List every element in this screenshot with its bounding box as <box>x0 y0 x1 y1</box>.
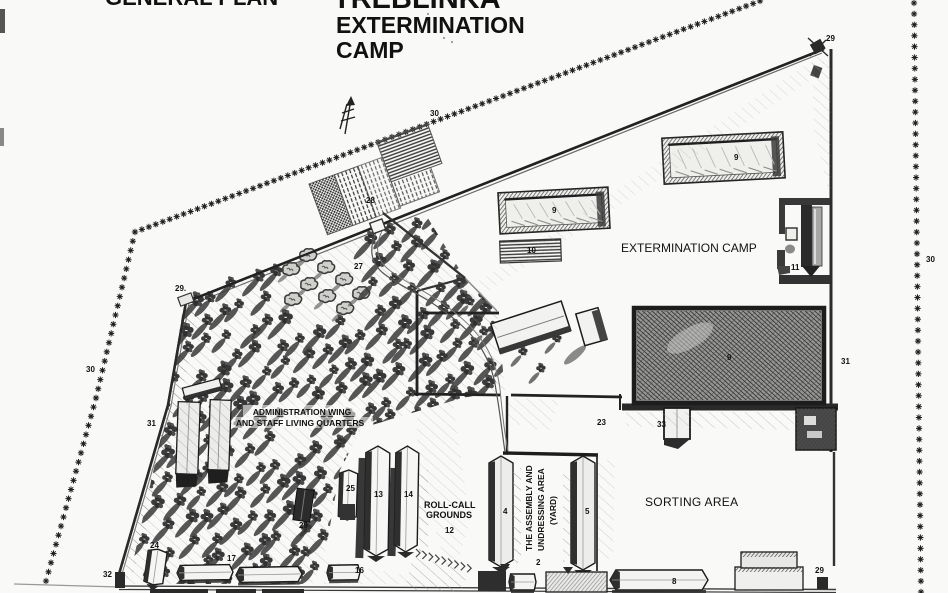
svg-text:8: 8 <box>672 577 677 586</box>
svg-text:29: 29 <box>826 34 835 43</box>
svg-text:25: 25 <box>346 484 355 493</box>
svg-text:29.: 29. <box>175 284 186 293</box>
svg-text:30: 30 <box>86 365 95 374</box>
svg-text:30: 30 <box>430 109 439 118</box>
svg-text:2: 2 <box>536 558 541 567</box>
svg-text:EXTERMINATION CAMP: EXTERMINATION CAMP <box>621 241 757 255</box>
svg-text:5: 5 <box>585 507 590 516</box>
svg-text:16: 16 <box>355 566 364 575</box>
svg-text:13: 13 <box>374 490 383 499</box>
svg-text:ROLL-CALL: ROLL-CALL <box>424 500 476 510</box>
svg-text:CAMP: CAMP <box>336 37 404 63</box>
svg-text:11: 11 <box>791 263 800 272</box>
svg-text:23: 23 <box>597 418 606 427</box>
svg-text:24: 24 <box>150 541 159 550</box>
svg-text:12: 12 <box>445 526 454 535</box>
svg-text:ADMINISTRATION WING: ADMINISTRATION WING <box>253 407 352 417</box>
svg-text:GROUNDS: GROUNDS <box>426 510 472 520</box>
svg-text:17: 17 <box>227 554 236 563</box>
svg-text:28: 28 <box>366 196 375 205</box>
svg-text:29: 29 <box>815 566 824 575</box>
svg-text:29: 29 <box>299 521 308 530</box>
svg-text:14: 14 <box>404 490 413 499</box>
svg-text:4: 4 <box>503 507 508 516</box>
svg-text:GENERAL PLAN: GENERAL PLAN <box>105 0 278 10</box>
svg-text:31: 31 <box>841 357 850 366</box>
svg-text:30: 30 <box>926 255 935 264</box>
svg-text:10: 10 <box>527 246 536 255</box>
svg-text:UNDRESSING AREA: UNDRESSING AREA <box>536 468 546 551</box>
svg-text:32: 32 <box>103 570 112 579</box>
svg-text:9: 9 <box>552 206 557 215</box>
svg-text:EXTERMINATION: EXTERMINATION <box>336 12 525 38</box>
svg-text:33: 33 <box>657 420 666 429</box>
svg-text:27: 27 <box>354 262 363 271</box>
svg-text:(YARD): (YARD) <box>548 496 558 525</box>
svg-text:SORTING AREA: SORTING AREA <box>645 495 738 509</box>
svg-text:AND STAFF LIVING QUARTERS: AND STAFF LIVING QUARTERS <box>236 418 365 428</box>
svg-text:9: 9 <box>734 153 739 162</box>
svg-text:9: 9 <box>727 353 732 362</box>
svg-text:THE ASSEMBLY AND: THE ASSEMBLY AND <box>524 465 534 551</box>
svg-text:31: 31 <box>147 419 156 428</box>
